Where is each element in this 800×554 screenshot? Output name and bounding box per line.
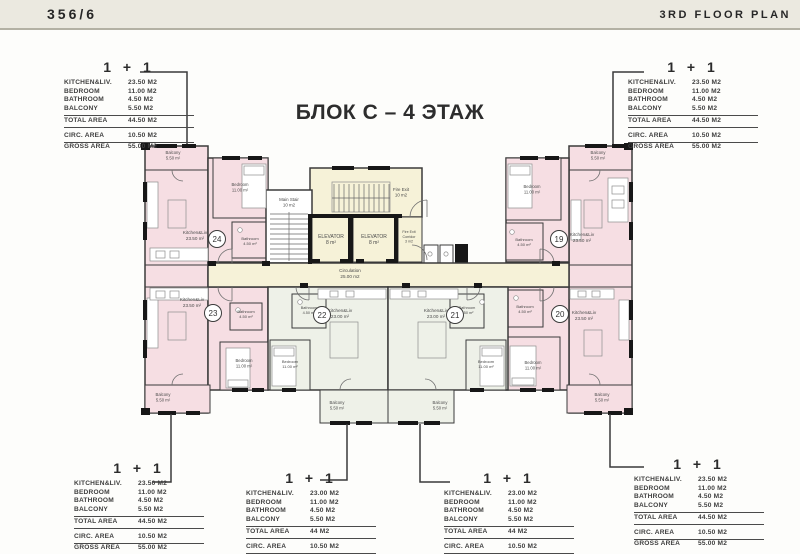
row-value: 55.00 M2 <box>138 544 167 553</box>
circ-area-row: CIRC. AREA10.50 M2 <box>246 543 376 554</box>
row-value: 44 M2 <box>310 528 329 537</box>
row-value: 23.50 M2 <box>138 480 167 489</box>
row-value: 4.50 M2 <box>692 96 717 105</box>
row-value: 11.00 M2 <box>698 485 727 494</box>
area-row: KITCHEN&LIV.23.50 M2 <box>74 480 204 489</box>
row-label: CIRC. AREA <box>634 529 698 538</box>
spec-table-bottom-3: 1 + 1KITCHEN&LIV.23.00 M2BEDROOM11.00 M2… <box>444 470 574 554</box>
row-value: 23.00 M2 <box>508 490 537 499</box>
row-label: BATHROOM <box>444 507 508 516</box>
room-label: Balcony5.50 m² <box>166 150 182 160</box>
row-value: 23.50 M2 <box>698 476 727 485</box>
row-value: 55.00 M2 <box>698 540 727 549</box>
row-value: 11.00 M2 <box>508 499 537 508</box>
circulation-corridor <box>208 263 569 287</box>
row-value: 5.50 M2 <box>692 105 717 114</box>
row-value: 11.00 M2 <box>138 489 167 498</box>
row-label: TOTAL AREA <box>246 528 310 537</box>
row-label: CIRC. AREA <box>246 543 310 552</box>
area-row: KITCHEN&LIV.23.00 M2 <box>444 490 574 499</box>
row-label: TOTAL AREA <box>634 514 698 523</box>
total-area-row: TOTAL AREA44.50 M2 <box>64 115 194 128</box>
row-label: BALCONY <box>246 516 310 525</box>
area-row: BALCONY5.50 M2 <box>628 105 758 114</box>
row-value: 4.50 M2 <box>138 497 163 506</box>
area-row: KITCHEN&LIV.23.50 M2 <box>64 79 194 88</box>
row-value: 5.50 M2 <box>310 516 335 525</box>
unit-type-label: 1 + 1 <box>64 59 194 75</box>
row-value: 4.50 M2 <box>508 507 533 516</box>
area-row: BEDROOM11.00 M2 <box>74 489 204 498</box>
area-row: BEDROOM11.00 M2 <box>444 499 574 508</box>
row-value: 10.50 M2 <box>508 543 537 552</box>
floor-plan-rooms <box>145 146 632 423</box>
room-label: Bedroom11.00 m² <box>524 184 542 194</box>
room-label: Bedroom11.00 m² <box>282 359 299 369</box>
row-value: 11.00 M2 <box>310 499 339 508</box>
row-value: 23.50 M2 <box>692 79 721 88</box>
area-row: BALCONY5.50 M2 <box>74 506 204 515</box>
row-value: 10.50 M2 <box>128 132 157 141</box>
area-row: BEDROOM11.00 M2 <box>64 88 194 97</box>
row-value: 5.50 M2 <box>128 105 153 114</box>
area-row: BEDROOM11.00 M2 <box>634 485 764 494</box>
row-label: BALCONY <box>634 502 698 511</box>
row-label: GROSS AREA <box>634 540 698 549</box>
row-label: BEDROOM <box>246 499 310 508</box>
unit-circle-23: 23 <box>205 305 222 322</box>
row-label: KITCHEN&LIV. <box>634 476 698 485</box>
row-value: 10.50 M2 <box>698 529 727 538</box>
circ-area-row: CIRC. AREA10.50 M2 <box>634 529 764 540</box>
unit-type-label: 1 + 1 <box>634 456 764 472</box>
area-row: BATHROOM4.50 M2 <box>74 497 204 506</box>
room-label: Bedroom11.00 m² <box>236 358 254 368</box>
row-value: 23.50 M2 <box>128 79 157 88</box>
row-label: BATHROOM <box>74 497 138 506</box>
row-label: TOTAL AREA <box>444 528 508 537</box>
unit-type-label: 1 + 1 <box>444 470 574 486</box>
row-value: 55.00 M2 <box>128 143 157 152</box>
row-label: CIRC. AREA <box>74 533 138 542</box>
unit-type-label: 1 + 1 <box>628 59 758 75</box>
row-label: BALCONY <box>64 105 128 114</box>
room-label: Bathroom4.50 m² <box>516 304 534 314</box>
row-label: KITCHEN&LIV. <box>628 79 692 88</box>
spec-table-bottom-1: 1 + 1KITCHEN&LIV.23.50 M2BEDROOM11.00 M2… <box>74 460 204 552</box>
row-label: GROSS AREA <box>64 143 128 152</box>
row-label: BATHROOM <box>246 507 310 516</box>
svg-text:20: 20 <box>556 310 565 319</box>
room-label: Balcony5.50 m² <box>591 150 607 160</box>
unit-circle-19: 19 <box>551 231 568 248</box>
total-area-row: TOTAL AREA44 M2 <box>246 526 376 539</box>
row-value: 44.50 M2 <box>138 518 167 527</box>
area-row: KITCHEN&LIV.23.50 M2 <box>634 476 764 485</box>
area-row: BATHROOM4.50 M2 <box>444 507 574 516</box>
circ-area-row: CIRC. AREA10.50 M2 <box>628 132 758 143</box>
row-label: BEDROOM <box>628 88 692 97</box>
row-value: 55.00 M2 <box>692 143 721 152</box>
area-row: BEDROOM11.00 M2 <box>246 499 376 508</box>
circ-area-row: CIRC. AREA10.50 M2 <box>444 543 574 554</box>
row-label: BALCONY <box>444 516 508 525</box>
area-row: BALCONY5.50 M2 <box>444 516 574 525</box>
spec-table-top-left: 1 + 1KITCHEN&LIV.23.50 M2BEDROOM11.00 M2… <box>64 59 194 151</box>
unit-type-label: 1 + 1 <box>74 460 204 476</box>
spec-table-bottom-2: 1 + 1KITCHEN&LIV.23.00 M2BEDROOM11.00 M2… <box>246 470 376 554</box>
row-label: CIRC. AREA <box>628 132 692 141</box>
row-value: 44.50 M2 <box>128 117 157 126</box>
spec-table-top-right: 1 + 1KITCHEN&LIV.23.50 M2BEDROOM11.00 M2… <box>628 59 758 151</box>
total-area-row: TOTAL AREA44.50 M2 <box>628 115 758 128</box>
row-value: 23.00 M2 <box>310 490 339 499</box>
area-row: BATHROOM4.50 M2 <box>628 96 758 105</box>
gross-area-row: GROSS AREA55.00 M2 <box>74 544 204 553</box>
row-value: 5.50 M2 <box>698 502 723 511</box>
area-row: BATHROOM4.50 M2 <box>634 493 764 502</box>
row-label: BEDROOM <box>74 489 138 498</box>
room-label: Balcony5.50 m² <box>595 392 611 402</box>
row-value: 10.50 M2 <box>310 543 339 552</box>
svg-text:24: 24 <box>213 235 222 244</box>
room-label: Balcony5.50 m² <box>330 400 346 410</box>
spec-table-bottom-4: 1 + 1KITCHEN&LIV.23.50 M2BEDROOM11.00 M2… <box>634 456 764 548</box>
row-value: 10.50 M2 <box>692 132 721 141</box>
row-label: BATHROOM <box>64 96 128 105</box>
row-value: 11.00 M2 <box>692 88 721 97</box>
row-label: KITCHEN&LIV. <box>246 490 310 499</box>
area-row: BATHROOM4.50 M2 <box>246 507 376 516</box>
row-label: TOTAL AREA <box>74 518 138 527</box>
row-label: TOTAL AREA <box>628 117 692 126</box>
svg-text:19: 19 <box>555 235 564 244</box>
row-label: TOTAL AREA <box>64 117 128 126</box>
row-label: BATHROOM <box>628 96 692 105</box>
room-label: Bedroom11.00 m² <box>525 360 543 370</box>
row-value: 4.50 M2 <box>698 493 723 502</box>
row-label: KITCHEN&LIV. <box>444 490 508 499</box>
gross-area-row: GROSS AREA55.00 M2 <box>64 143 194 152</box>
row-label: KITCHEN&LIV. <box>64 79 128 88</box>
area-row: KITCHEN&LIV.23.00 M2 <box>246 490 376 499</box>
balcony-23 <box>145 385 210 413</box>
row-label: BALCONY <box>628 105 692 114</box>
area-row: KITCHEN&LIV.23.50 M2 <box>628 79 758 88</box>
unit-circle-21: 21 <box>447 307 464 324</box>
row-value: 44 M2 <box>508 528 527 537</box>
row-value: 11.00 M2 <box>128 88 157 97</box>
row-value: 10.50 M2 <box>138 533 167 542</box>
row-value: 44.50 M2 <box>698 514 727 523</box>
row-label: BEDROOM <box>64 88 128 97</box>
row-value: 4.50 M2 <box>310 507 335 516</box>
area-row: BATHROOM4.50 M2 <box>64 96 194 105</box>
room-label: Bathroom4.50 m² <box>237 309 255 319</box>
row-label: CIRC. AREA <box>64 132 128 141</box>
room-label: Bedroom11.00 m² <box>478 359 495 369</box>
total-area-row: TOTAL AREA44.50 M2 <box>634 512 764 525</box>
unit-circle-24: 24 <box>209 231 226 248</box>
room-label: Balcony5.50 m² <box>156 392 172 402</box>
area-row: BEDROOM11.00 M2 <box>628 88 758 97</box>
circ-area-row: CIRC. AREA10.50 M2 <box>64 132 194 143</box>
gross-area-row: GROSS AREA55.00 M2 <box>628 143 758 152</box>
row-label: CIRC. AREA <box>444 543 508 552</box>
area-row: BALCONY5.50 M2 <box>64 105 194 114</box>
room-label: Bathroom4.50 m² <box>241 236 259 246</box>
circ-area-row: CIRC. AREA10.50 M2 <box>74 533 204 544</box>
unit-type-label: 1 + 1 <box>246 470 376 486</box>
unit-circle-22: 22 <box>314 307 331 324</box>
svg-text:22: 22 <box>318 311 327 320</box>
room-label: Bedroom11.00 m² <box>232 182 250 192</box>
total-area-row: TOTAL AREA44.50 M2 <box>74 516 204 529</box>
row-value: 5.50 M2 <box>138 506 163 515</box>
row-value: 4.50 M2 <box>128 96 153 105</box>
row-label: KITCHEN&LIV. <box>74 480 138 489</box>
row-label: GROSS AREA <box>74 544 138 553</box>
unit-circle-20: 20 <box>552 306 569 323</box>
gross-area-row: GROSS AREA55.00 M2 <box>634 540 764 549</box>
floor-plan-sheet: 356/6 3RD FLOOR PLAN БЛОК С – 4 ЭТАЖ <box>0 0 800 554</box>
row-label: BALCONY <box>74 506 138 515</box>
room-label: Bathroom4.50 m² <box>515 237 533 247</box>
svg-text:23: 23 <box>209 309 218 318</box>
row-label: GROSS AREA <box>628 143 692 152</box>
row-label: BATHROOM <box>634 493 698 502</box>
svg-text:21: 21 <box>451 311 460 320</box>
room-label: Balcony5.50 m² <box>433 400 449 410</box>
area-row: BALCONY5.50 M2 <box>634 502 764 511</box>
row-value: 44.50 M2 <box>692 117 721 126</box>
total-area-row: TOTAL AREA44 M2 <box>444 526 574 539</box>
row-label: BEDROOM <box>634 485 698 494</box>
room-label: Circulation25.00 m2 <box>339 268 361 279</box>
row-value: 5.50 M2 <box>508 516 533 525</box>
row-label: BEDROOM <box>444 499 508 508</box>
area-row: BALCONY5.50 M2 <box>246 516 376 525</box>
